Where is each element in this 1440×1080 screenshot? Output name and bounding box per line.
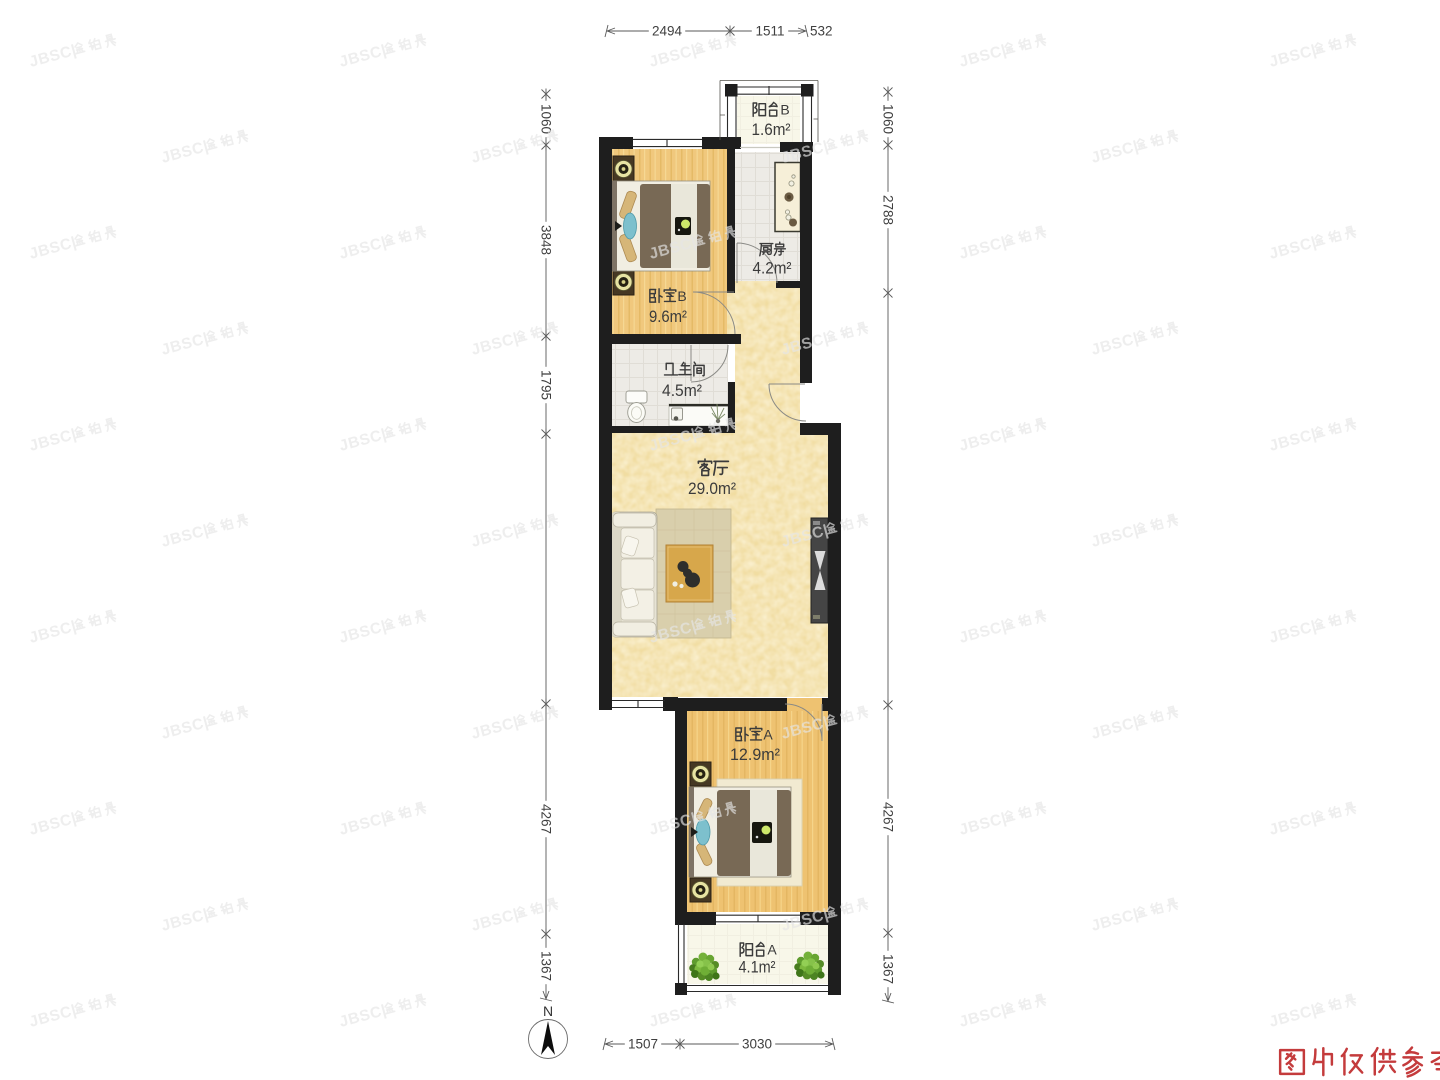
svg-text:1.6m²: 1.6m²: [752, 121, 791, 139]
svg-text:3030: 3030: [742, 1037, 772, 1052]
svg-text:2494: 2494: [652, 24, 683, 39]
svg-text:1511: 1511: [755, 24, 784, 39]
svg-text:B: B: [780, 102, 789, 118]
svg-text:1507: 1507: [628, 1037, 658, 1052]
svg-text:N: N: [543, 1003, 553, 1019]
svg-text:1060: 1060: [881, 104, 896, 134]
svg-text:B: B: [677, 288, 686, 304]
svg-text:4.1m²: 4.1m²: [739, 959, 776, 977]
svg-text:4.2m²: 4.2m²: [753, 260, 792, 278]
svg-text:532: 532: [810, 24, 833, 39]
svg-text:1367: 1367: [881, 954, 896, 984]
svg-text:4.5m²: 4.5m²: [662, 382, 702, 400]
svg-text:1367: 1367: [539, 951, 554, 981]
svg-text:29.0m²: 29.0m²: [688, 480, 736, 498]
svg-text:4267: 4267: [881, 802, 896, 832]
svg-text:2788: 2788: [881, 195, 896, 225]
svg-text:9.6m²: 9.6m²: [649, 308, 687, 326]
svg-text:1795: 1795: [539, 370, 554, 400]
svg-text:12.9m²: 12.9m²: [730, 746, 780, 764]
svg-text:A: A: [763, 727, 773, 743]
svg-text:3848: 3848: [539, 225, 554, 255]
svg-text:4267: 4267: [539, 804, 554, 834]
svg-text:1060: 1060: [539, 104, 554, 134]
svg-text:A: A: [767, 942, 777, 958]
